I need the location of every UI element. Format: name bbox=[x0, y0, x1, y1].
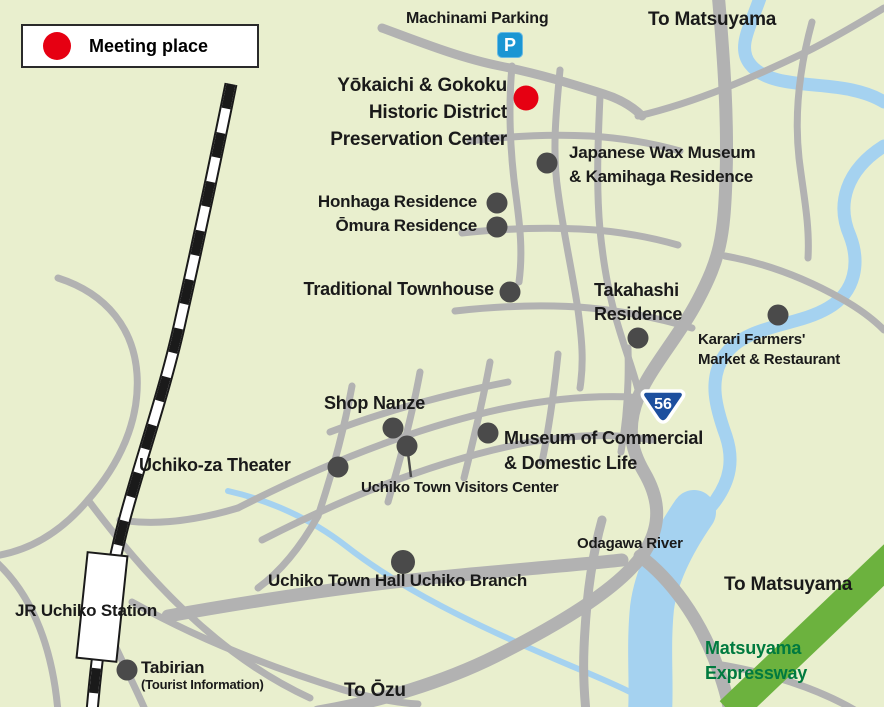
label-shop-nanze: Shop Nanze bbox=[324, 393, 425, 415]
label-museum-commercial: Museum of Commercial & Domestic Life bbox=[504, 426, 703, 476]
label-honhaga: Honhaga Residence bbox=[318, 192, 477, 212]
label-omura: Ōmura Residence bbox=[335, 216, 477, 236]
label-wax-museum: Japanese Wax Museum & Kamihaga Residence bbox=[569, 141, 755, 189]
wax-museum-line2: & Kamihaga Residence bbox=[569, 165, 755, 189]
karari-line2: Market & Restaurant bbox=[698, 350, 840, 370]
label-to-matsuyama-top: To Matsuyama bbox=[648, 9, 776, 32]
label-jr-station: JR Uchiko Station bbox=[15, 601, 157, 621]
takahashi-line1: Takahashi bbox=[594, 278, 682, 302]
takahashi-line2: Residence bbox=[594, 302, 682, 326]
marker-honhaga bbox=[487, 193, 508, 214]
label-machinami-parking: Machinami Parking bbox=[406, 9, 548, 28]
road bbox=[0, 560, 58, 707]
label-uchikoza: Uchiko-za Theater bbox=[139, 455, 291, 477]
marker-tabirian bbox=[117, 660, 138, 681]
label-karari: Karari Farmers' Market & Restaurant bbox=[698, 330, 840, 370]
legend: Meeting place bbox=[21, 24, 259, 68]
marker-wax-museum bbox=[537, 153, 558, 174]
museum-commercial-line2: & Domestic Life bbox=[504, 451, 703, 476]
label-to-matsuyama-bottom: To Matsuyama bbox=[724, 574, 852, 597]
marker-uchikoza bbox=[328, 457, 349, 478]
meeting-place-legend-icon bbox=[43, 32, 71, 60]
expressway-line2: Expressway bbox=[705, 661, 807, 686]
marker-townhouse bbox=[500, 282, 521, 303]
label-tourist-information: (Tourist Information) bbox=[141, 677, 264, 693]
expressway-line1: Matsuyama bbox=[705, 636, 807, 661]
legend-label: Meeting place bbox=[89, 36, 208, 57]
label-to-ozu: To Ōzu bbox=[344, 680, 406, 703]
karari-line1: Karari Farmers' bbox=[698, 330, 840, 350]
preservation-center-line2: Historic District bbox=[330, 99, 507, 126]
meeting-place-marker bbox=[514, 86, 539, 111]
label-townhouse: Traditional Townhouse bbox=[304, 279, 494, 301]
preservation-center-line1: Yōkaichi & Gokoku bbox=[330, 72, 507, 99]
preservation-center-line3: Preservation Center bbox=[330, 126, 507, 153]
museum-commercial-line1: Museum of Commercial bbox=[504, 426, 703, 451]
road bbox=[0, 278, 137, 556]
marker-museum-commercial bbox=[478, 423, 499, 444]
parking-icon: P bbox=[497, 32, 523, 58]
route-number: 56 bbox=[654, 396, 672, 413]
label-matsuyama-expressway: Matsuyama Expressway bbox=[705, 636, 807, 686]
parking-icon-letter: P bbox=[504, 35, 516, 56]
label-preservation-center: Yōkaichi & Gokoku Historic District Pres… bbox=[330, 72, 507, 153]
label-odagawa-river: Odagawa River bbox=[577, 535, 683, 553]
label-town-hall: Uchiko Town Hall Uchiko Branch bbox=[268, 571, 527, 591]
label-visitors-center: Uchiko Town Visitors Center bbox=[361, 479, 558, 497]
road bbox=[120, 508, 238, 522]
marker-karari bbox=[768, 305, 789, 326]
marker-omura bbox=[487, 217, 508, 238]
marker-shop-nanze bbox=[383, 418, 404, 439]
marker-visitors-center bbox=[397, 436, 418, 457]
wax-museum-line1: Japanese Wax Museum bbox=[569, 141, 755, 165]
marker-takahashi bbox=[628, 328, 649, 349]
label-takahashi: Takahashi Residence bbox=[594, 278, 682, 326]
uchiko-tourist-map: 56 Meeting place P Machinami Parking To … bbox=[0, 0, 884, 707]
label-tabirian: Tabirian bbox=[141, 658, 204, 678]
route-56-badge: 56 bbox=[642, 391, 683, 422]
